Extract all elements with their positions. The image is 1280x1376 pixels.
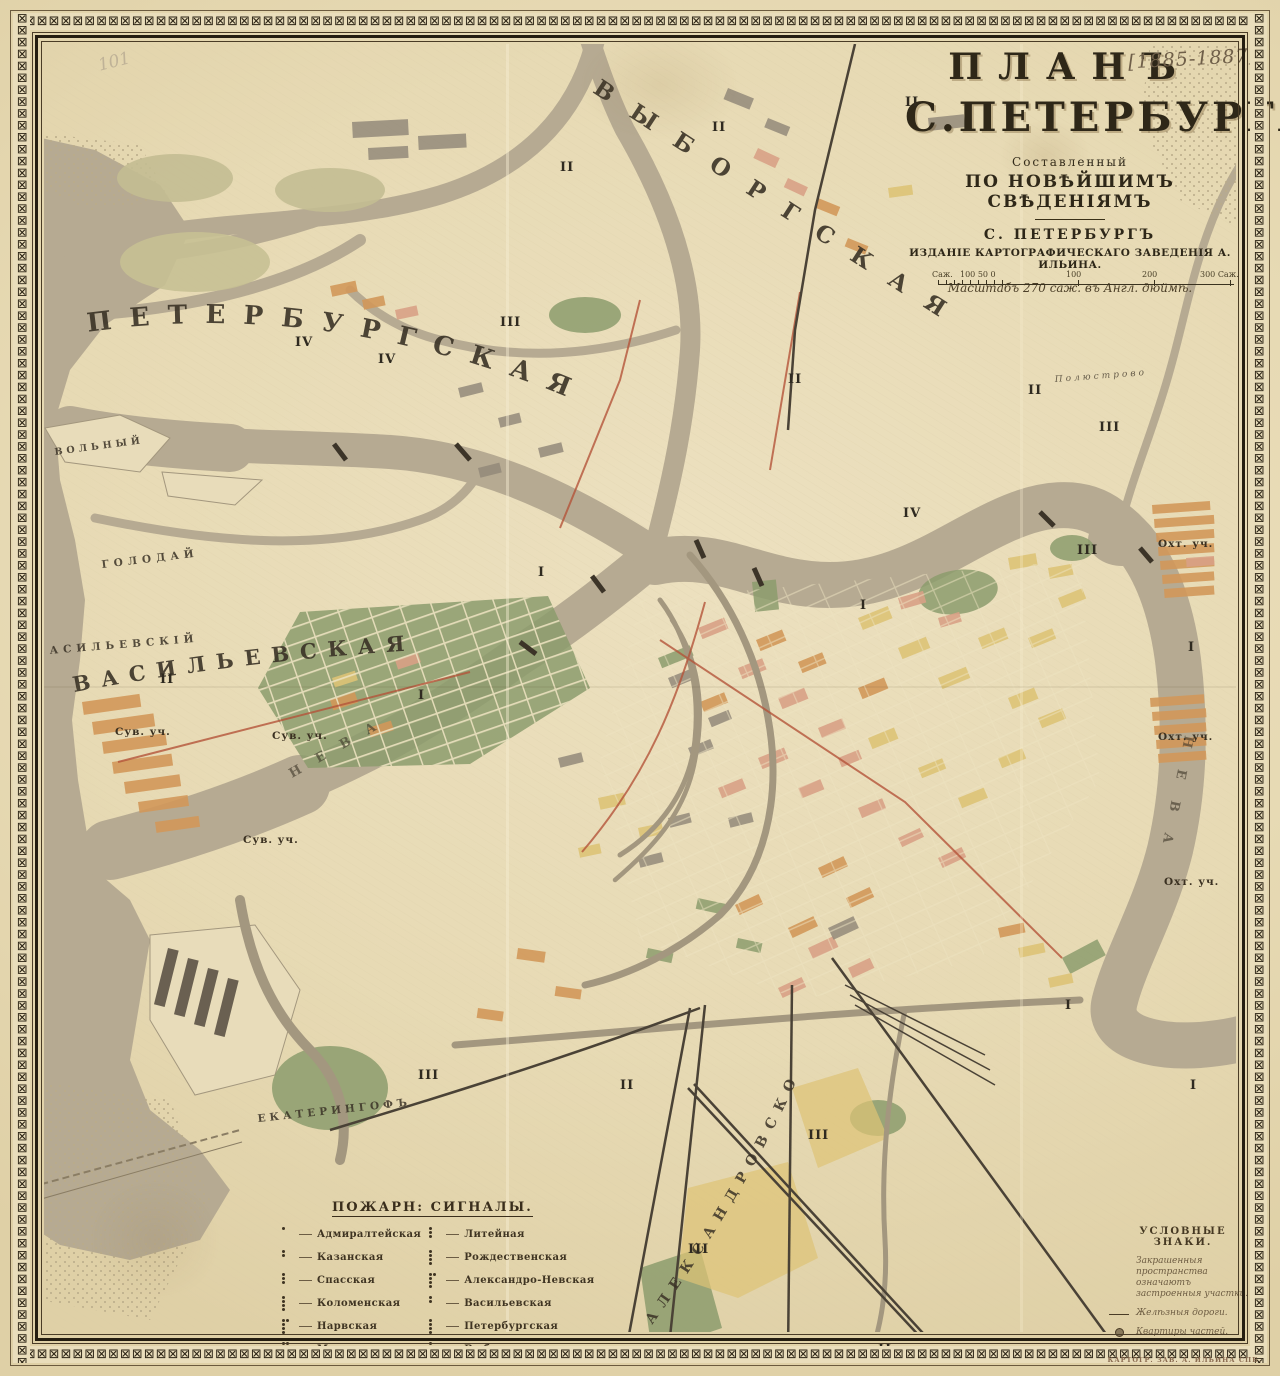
fire-district-name: Нарвская <box>317 1321 377 1332</box>
legend-leader-line <box>299 1326 312 1327</box>
fire-legend-left-column: АдмиралтейскаяКазанскаяСпасскаяКоломенск… <box>282 1223 421 1361</box>
ward-numeral: I <box>1190 1078 1197 1093</box>
map-key-label: Квартиры частей. <box>1136 1327 1228 1338</box>
ward-numeral: I <box>860 598 867 613</box>
fire-district-name: Адмиралтейская <box>317 1229 421 1240</box>
map-key-title: УСЛОВНЫЕ ЗНАКИ. <box>1108 1226 1258 1248</box>
publication-city: С. ПЕТЕРБУРГЪ <box>905 227 1235 243</box>
ward-numeral: I <box>1188 640 1195 655</box>
fire-district-name: Спасская <box>317 1275 375 1286</box>
fire-district-name: Казанская <box>317 1252 384 1263</box>
railway-line-symbol <box>1108 1308 1130 1319</box>
scale-bar-unit-label: Саж. <box>932 270 953 279</box>
map-key-item: Желѣзныя дороги. <box>1108 1308 1258 1319</box>
legend-leader-line <box>446 1326 459 1327</box>
fire-district-name: Александро-Невская <box>464 1275 594 1286</box>
fire-signal-dots <box>282 1250 294 1265</box>
precinct-office-symbol <box>1108 1327 1130 1341</box>
scale-bar-subdivisions <box>938 280 1002 285</box>
map-key-item: Закрашенныя пространства означаютъ застр… <box>1108 1256 1258 1300</box>
fold-seam <box>506 44 509 1332</box>
map-key-label: Желѣзныя дороги. <box>1136 1308 1228 1319</box>
fire-legend-entry: Васильевская <box>429 1292 594 1315</box>
title-block: ПЛАНЪ С.ПЕТЕРБУРГА Составленный ПО НОВѢЙ… <box>905 46 1235 295</box>
legend-leader-line <box>299 1280 312 1281</box>
scale-bar-label-300: 300 Саж. <box>1200 270 1239 279</box>
fire-district-name: Рождественская <box>464 1252 567 1263</box>
ward-numeral: I <box>1065 998 1072 1013</box>
fire-district-name: Петербургская <box>464 1321 558 1332</box>
ward-numeral: III <box>500 315 521 330</box>
fire-signals-legend: ПОЖАРН: СИГНАЛЫ. АдмиралтейскаяКазанская… <box>282 1196 534 1361</box>
legend-leader-line <box>446 1280 459 1281</box>
fire-legend-entry: Коломенская <box>282 1292 421 1315</box>
map-key-legend: УСЛОВНЫЕ ЗНАКИ. Закрашенныя пространства… <box>1108 1226 1258 1341</box>
scale-bar-label-200: 200 <box>1142 270 1157 279</box>
fire-legend-entry: Рождественская <box>429 1246 594 1269</box>
legend-leader-line <box>446 1303 459 1304</box>
fire-legend-entry: Нарвская <box>282 1315 421 1338</box>
scale-bar-sub-labels: 100 50 0 <box>960 270 996 279</box>
fire-signal-dots <box>429 1296 441 1311</box>
scale-bar: Саж. 100 50 0 100 200 300 Саж. <box>938 272 1234 294</box>
fire-district-name: Литейная <box>464 1229 525 1240</box>
fire-signal-dots <box>429 1227 441 1242</box>
precinct-label-suvorovsky: Сув. уч. <box>243 834 299 846</box>
ward-numeral: IV <box>295 335 313 350</box>
ward-numeral: III <box>688 1242 709 1257</box>
fire-legend-entry: Казанская <box>282 1246 421 1269</box>
fire-signal-dots <box>429 1250 441 1265</box>
map-key-label: Закрашенныя пространства означаютъ застр… <box>1136 1256 1258 1300</box>
fire-legend-entry: Литейная <box>429 1223 594 1246</box>
ward-numeral: II <box>560 160 574 175</box>
ward-numeral: III <box>418 1068 439 1083</box>
legend-leader-line <box>299 1234 312 1235</box>
fire-legend-title: ПОЖАРН: СИГНАЛЫ. <box>332 1200 533 1217</box>
printer-imprint: КАРТОГР. ЗАВ. А. ИЛЬИНА СПБ. <box>1107 1356 1262 1364</box>
border-band: ⊠⊠⊠⊠⊠⊠⊠⊠⊠⊠⊠⊠⊠⊠⊠⊠⊠⊠⊠⊠⊠⊠⊠⊠⊠⊠⊠⊠⊠⊠⊠⊠⊠⊠⊠⊠⊠⊠⊠⊠… <box>13 13 30 1363</box>
precinct-label-okhtensky: Охт. уч. <box>1158 538 1213 550</box>
fire-legend-entry: Александро-Невская <box>429 1269 594 1292</box>
ward-numeral: II <box>1028 383 1042 398</box>
precinct-label-okhtensky: Охт. уч. <box>1158 731 1213 743</box>
fire-legend-entry: Адмиралтейская <box>282 1223 421 1246</box>
fire-signal-dots <box>282 1273 294 1288</box>
ward-numeral: III <box>808 1128 829 1143</box>
legend-leader-line <box>299 1303 312 1304</box>
ward-numeral: II <box>620 1078 634 1093</box>
ward-numeral: IV <box>903 506 921 521</box>
scale-bar-label-100: 100 <box>1066 270 1081 279</box>
ward-numeral: I <box>538 565 545 580</box>
ward-numeral: III <box>1077 543 1098 558</box>
map-sheet: ПЕТЕРБУРГСКАЯ ВАСИЛЬЕВСКАЯ ВАСИЛЬЕВСКІЙ … <box>0 0 1280 1376</box>
fire-signal-dots <box>282 1296 294 1311</box>
fire-district-name: Коломенская <box>317 1298 400 1309</box>
fire-signal-dots <box>429 1273 441 1288</box>
border-band: ⊠⊠⊠⊠⊠⊠⊠⊠⊠⊠⊠⊠⊠⊠⊠⊠⊠⊠⊠⊠⊠⊠⊠⊠⊠⊠⊠⊠⊠⊠⊠⊠⊠⊠⊠⊠⊠⊠⊠⊠… <box>13 1346 1267 1363</box>
map-title-line2: С.ПЕТЕРБУРГА <box>905 94 1235 141</box>
title-divider <box>1035 219 1105 220</box>
legend-leader-line <box>446 1234 459 1235</box>
ward-numeral: IV <box>378 352 396 367</box>
fire-signal-dots <box>282 1227 294 1242</box>
precinct-label-okhtensky: Охт. уч. <box>1164 876 1219 888</box>
ward-numeral: II <box>712 120 726 135</box>
fire-signal-dots <box>282 1319 294 1334</box>
border-band: ⊠⊠⊠⊠⊠⊠⊠⊠⊠⊠⊠⊠⊠⊠⊠⊠⊠⊠⊠⊠⊠⊠⊠⊠⊠⊠⊠⊠⊠⊠⊠⊠⊠⊠⊠⊠⊠⊠⊠⊠… <box>1250 13 1267 1363</box>
fire-district-name: Васильевская <box>464 1298 552 1309</box>
fire-legend-entry: Спасская <box>282 1269 421 1292</box>
map-key-item: Квартиры частей. <box>1108 1327 1258 1341</box>
ward-numeral: III <box>1099 420 1120 435</box>
fire-legend-entry: Петербургская <box>429 1315 594 1338</box>
ward-numeral: II <box>905 95 919 110</box>
ward-numeral: II <box>788 372 802 387</box>
legend-leader-line <box>299 1257 312 1258</box>
fire-legend-right-column: ЛитейнаяРождественскаяАлександро-Невская… <box>429 1223 594 1361</box>
fold-seam <box>44 686 1236 688</box>
legend-leader-line <box>446 1257 459 1258</box>
precinct-label-suvorovsky: Сув. уч. <box>272 730 328 742</box>
ward-numeral: I <box>418 688 425 703</box>
border-band: ⊠⊠⊠⊠⊠⊠⊠⊠⊠⊠⊠⊠⊠⊠⊠⊠⊠⊠⊠⊠⊠⊠⊠⊠⊠⊠⊠⊠⊠⊠⊠⊠⊠⊠⊠⊠⊠⊠⊠⊠… <box>13 13 1267 30</box>
ward-numeral: II <box>160 672 174 687</box>
publisher-line: ИЗДАНІЕ КАРТОГРАФИЧЕСКАГО ЗАВЕДЕНІЯ А. И… <box>905 247 1235 271</box>
fire-signal-dots <box>429 1319 441 1334</box>
map-subtitle-sources: ПО НОВѢЙШИМЪ СВѢДЕНІЯМЪ <box>905 172 1235 212</box>
precinct-label-suvorovsky: Сув. уч. <box>115 726 171 738</box>
map-subtitle-compiled: Составленный <box>905 155 1235 169</box>
